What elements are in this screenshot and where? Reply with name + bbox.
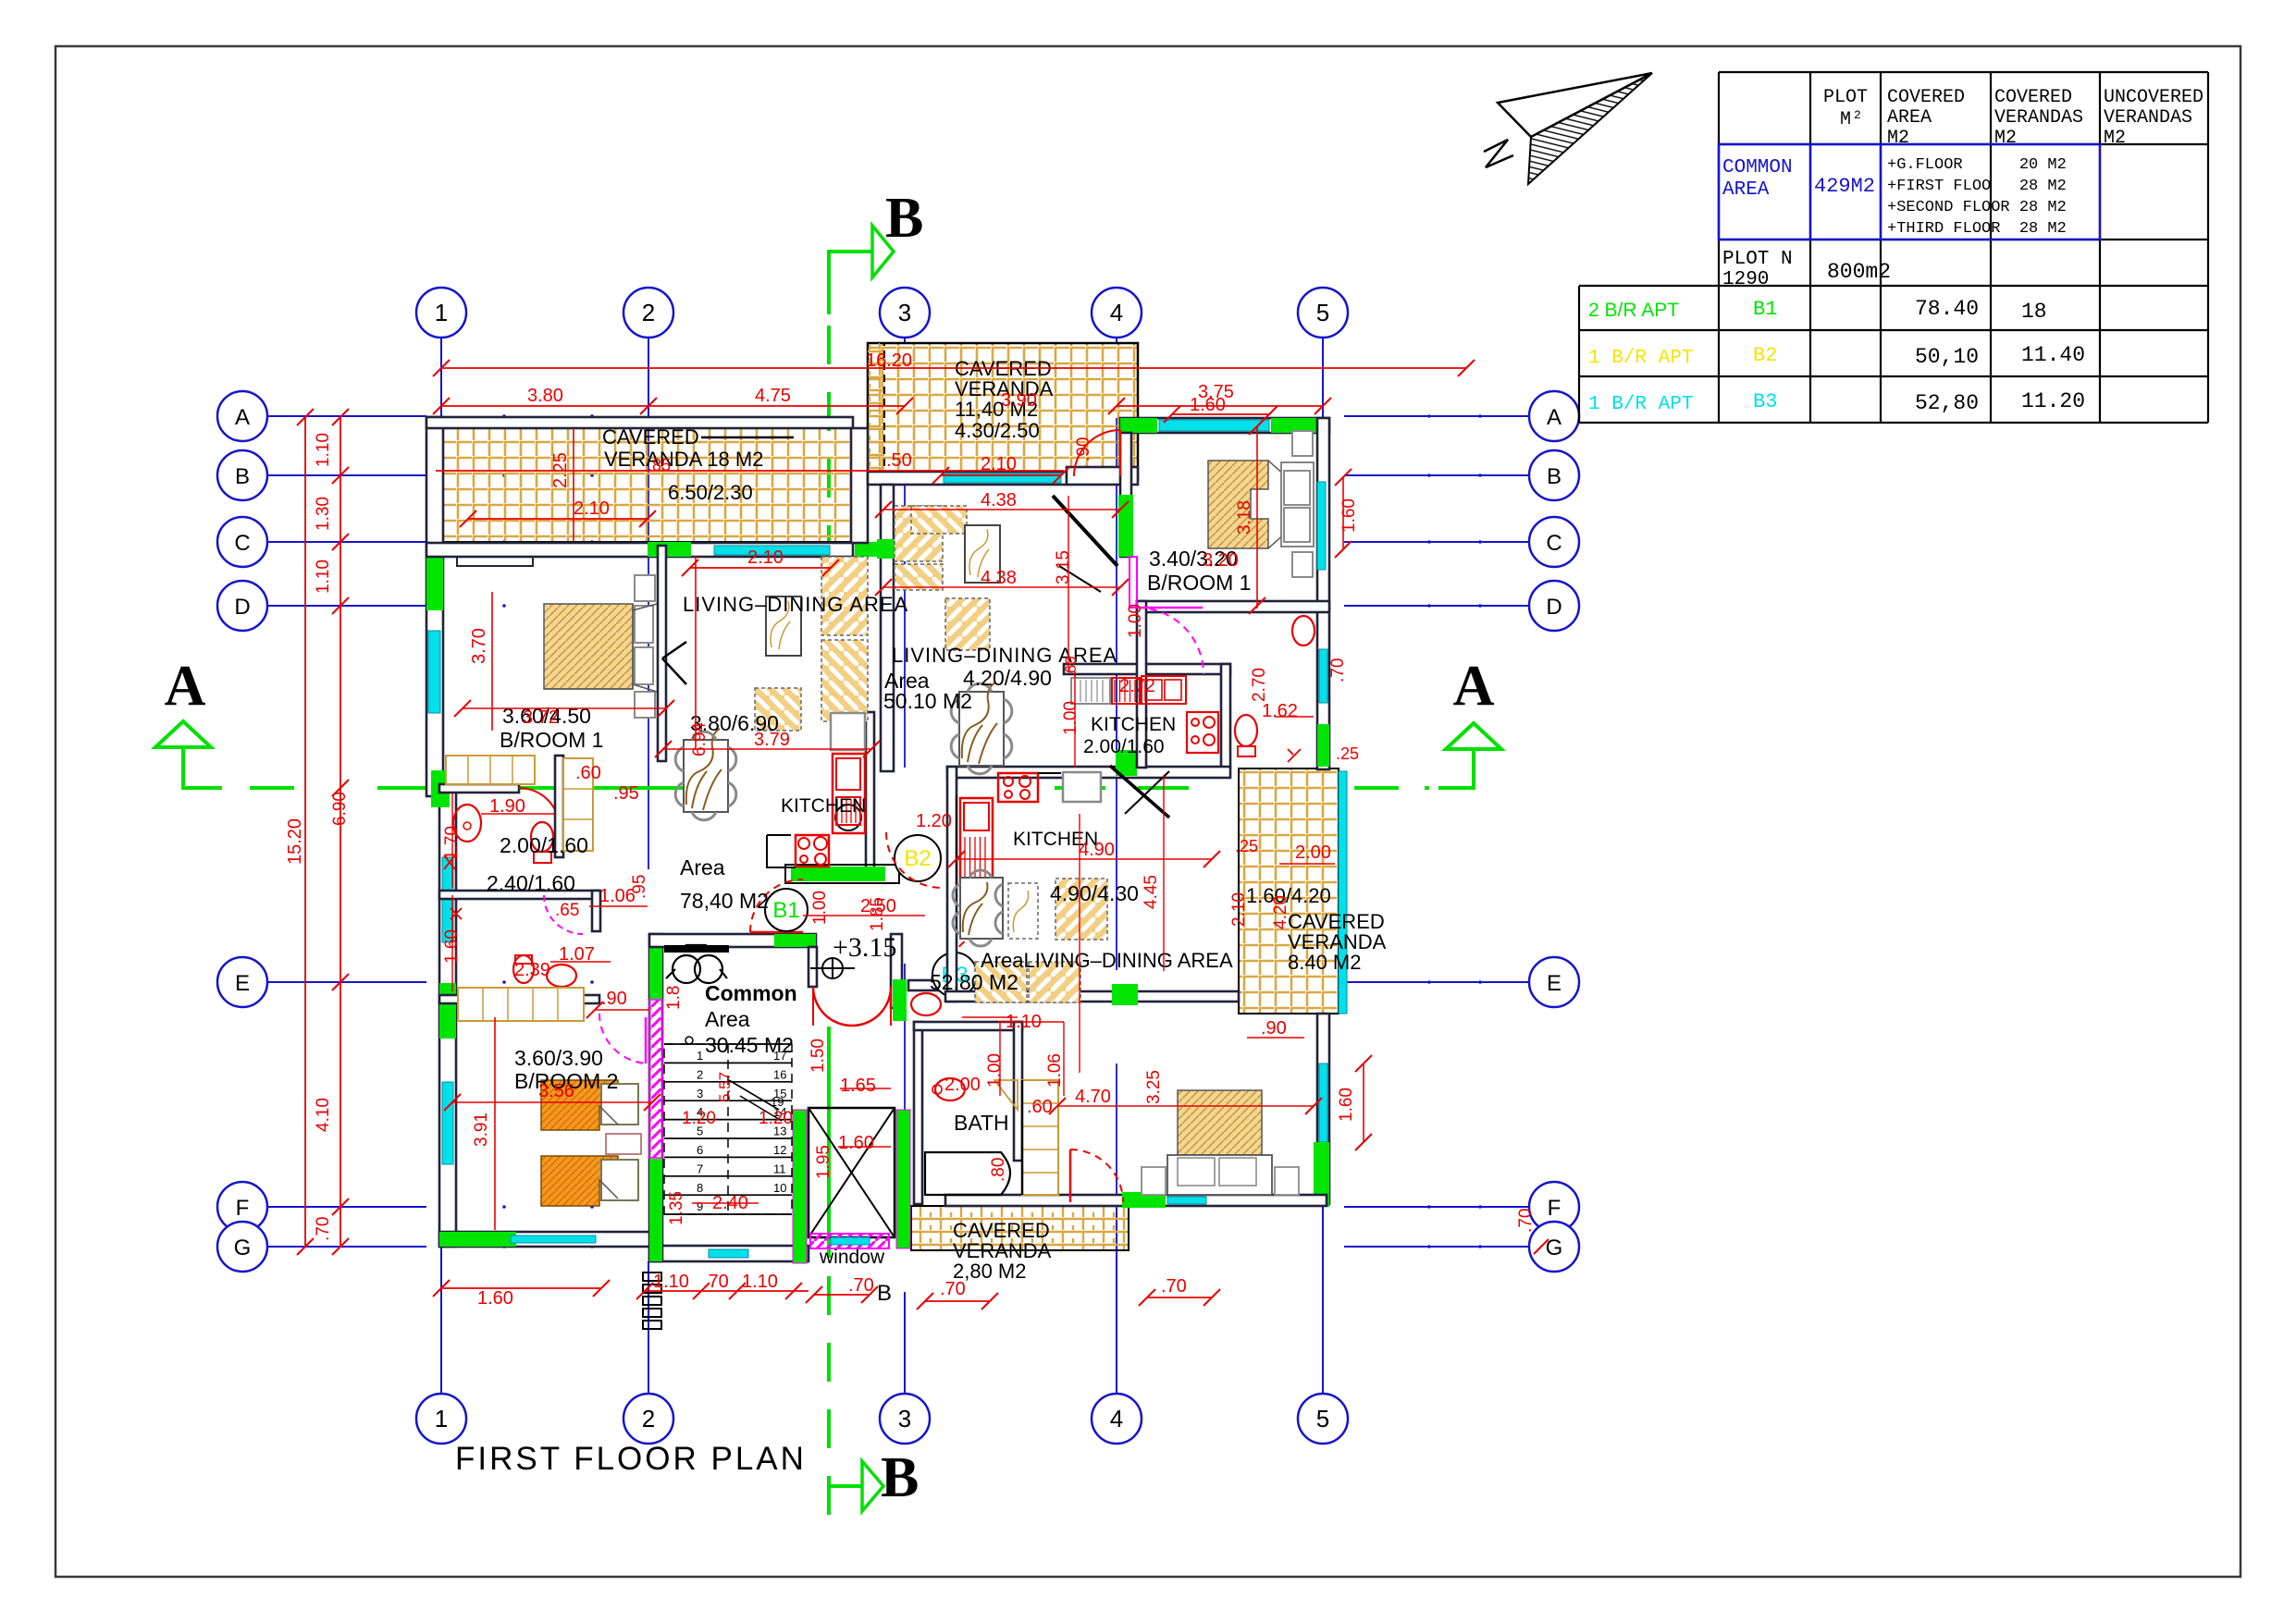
svg-text:1.8: 1.8 (664, 986, 684, 1010)
svg-text:COVERED: COVERED (1887, 87, 1965, 108)
svg-text:C: C (1546, 531, 1562, 556)
svg-text:2.10: 2.10 (574, 498, 610, 519)
svg-text:1.60: 1.60 (477, 1288, 513, 1309)
svg-text:3.15: 3.15 (1054, 550, 1073, 584)
svg-text:.70: .70 (848, 1275, 874, 1296)
svg-text:2: 2 (1854, 108, 1861, 122)
svg-text:F: F (236, 1196, 250, 1221)
svg-text:AREA: AREA (1887, 107, 1932, 129)
svg-text:KITCHEN: KITCHEN (781, 795, 866, 817)
svg-text:.70: .70 (1516, 1209, 1536, 1233)
svg-text:.65: .65 (555, 901, 579, 920)
svg-text:3.70: 3.70 (469, 628, 489, 664)
svg-text:2.39: 2.39 (514, 960, 550, 980)
svg-text:E: E (235, 971, 250, 996)
svg-text:+3.15: +3.15 (833, 932, 896, 963)
svg-text:VERANDA 18 M2: VERANDA 18 M2 (604, 448, 763, 471)
svg-text:PLOT N: PLOT N (1722, 249, 1793, 270)
svg-text:PLOT: PLOT (1823, 87, 1868, 108)
svg-text:8: 8 (697, 1181, 703, 1195)
svg-text:.90: .90 (1261, 1018, 1287, 1039)
svg-text:30.45 M2: 30.45 M2 (705, 1033, 794, 1057)
svg-text:3.60/3.90: 3.60/3.90 (514, 1046, 603, 1070)
svg-text:6.94: 6.94 (690, 722, 710, 756)
svg-text:.70: .70 (314, 1217, 333, 1241)
svg-text:Area: Area (705, 1007, 750, 1031)
svg-text:1.60: 1.60 (442, 929, 462, 964)
svg-text:.70: .70 (703, 1272, 729, 1292)
svg-text:3.90: 3.90 (1001, 390, 1037, 411)
svg-text:3: 3 (898, 1405, 911, 1432)
svg-text:VERANDAS: VERANDAS (2104, 107, 2192, 129)
svg-text:.60: .60 (1062, 656, 1080, 678)
svg-text:M2: M2 (2104, 128, 2126, 149)
svg-text:Common: Common (705, 981, 797, 1005)
svg-text:3: 3 (898, 299, 911, 326)
svg-text:12: 12 (773, 1143, 786, 1157)
svg-text:2.40: 2.40 (712, 1193, 748, 1213)
svg-text:+FIRST FLOO 28 M2: +FIRST FLOO 28 M2 (1887, 178, 2067, 195)
svg-text:1.07: 1.07 (559, 944, 595, 965)
svg-text:4.75: 4.75 (755, 386, 791, 406)
svg-text:50,10: 50,10 (1915, 345, 1979, 369)
svg-text:.70: .70 (1161, 1276, 1187, 1297)
svg-text:1.60: 1.60 (1337, 1088, 1356, 1122)
svg-text:7: 7 (697, 1162, 703, 1175)
svg-text:B2: B2 (904, 846, 931, 871)
svg-text:1.62: 1.62 (1262, 701, 1298, 721)
svg-text:.60: .60 (1027, 1097, 1053, 1117)
svg-text:52,80: 52,80 (1915, 391, 1979, 415)
svg-text:COMMON: COMMON (1722, 157, 1793, 178)
svg-text:4.38: 4.38 (981, 490, 1017, 510)
svg-text:2.10: 2.10 (747, 547, 784, 568)
svg-text:A: A (165, 655, 206, 718)
svg-text:1.20: 1.20 (682, 1109, 716, 1128)
svg-text:UNCOVERED: UNCOVERED (2104, 87, 2203, 108)
svg-text:18: 18 (2021, 300, 2047, 324)
svg-text:1.06: 1.06 (1045, 1053, 1065, 1088)
svg-text:D: D (1546, 595, 1562, 620)
svg-text:+SECOND FLOOR 28 M2: +SECOND FLOOR 28 M2 (1887, 199, 2067, 216)
svg-text:B: B (881, 1446, 919, 1509)
svg-text:5: 5 (1316, 1405, 1329, 1432)
svg-text:B2: B2 (1753, 344, 1777, 367)
svg-text:LIVING–DINING AREA: LIVING–DINING AREA (892, 644, 1117, 667)
svg-text:B/ROOM 1: B/ROOM 1 (500, 728, 603, 752)
svg-text:16.20: 16.20 (866, 350, 912, 371)
svg-text:E: E (1547, 971, 1562, 996)
svg-text:B3: B3 (1753, 390, 1777, 413)
svg-text:3.79: 3.79 (754, 730, 790, 750)
svg-text:.70: .70 (940, 1279, 966, 1299)
svg-text:1.00: 1.00 (1126, 604, 1145, 638)
svg-text:1.35: 1.35 (667, 1191, 686, 1225)
svg-text:1: 1 (435, 299, 448, 326)
svg-text:1.70: 1.70 (442, 826, 462, 860)
svg-text:9: 9 (697, 1199, 703, 1213)
svg-text:15.20: 15.20 (285, 818, 305, 865)
svg-text:3: 3 (697, 1087, 703, 1100)
svg-text:1.60: 1.60 (1190, 395, 1226, 415)
svg-text:B: B (1547, 464, 1562, 489)
svg-text:2.25: 2.25 (550, 452, 571, 488)
svg-text:B1: B1 (772, 898, 799, 923)
svg-text:16: 16 (773, 1067, 786, 1081)
svg-text:1.10: 1.10 (653, 1272, 689, 1292)
svg-text:3.25: 3.25 (1144, 1070, 1164, 1104)
svg-text:4.20/4.90: 4.20/4.90 (963, 666, 1052, 690)
svg-text:11.20: 11.20 (2021, 389, 2085, 413)
svg-text:C: C (234, 531, 250, 556)
svg-text:4.38: 4.38 (981, 568, 1017, 588)
svg-text:11.40: 11.40 (2021, 343, 2085, 367)
svg-text:2.10: 2.10 (981, 454, 1017, 474)
svg-text:1.60: 1.60 (838, 1133, 874, 1153)
svg-text:1.00: 1.00 (985, 1053, 1005, 1088)
svg-text:.60: .60 (575, 763, 601, 783)
svg-text:.85: .85 (648, 456, 671, 474)
svg-text:78.40: 78.40 (1915, 297, 1979, 321)
svg-text:.95: .95 (630, 875, 649, 899)
svg-text:1: 1 (697, 1049, 703, 1063)
svg-text:2.70: 2.70 (1250, 668, 1269, 702)
svg-text:1.60: 1.60 (1339, 498, 1359, 533)
svg-text:+THIRD FLOOR 28 M2: +THIRD FLOOR 28 M2 (1887, 220, 2067, 238)
svg-text:2.00: 2.00 (1295, 842, 1331, 863)
svg-text:1 B/R APT: 1 B/R APT (1588, 394, 1693, 415)
svg-text:1.65: 1.65 (840, 1076, 876, 1096)
svg-text:1.90: 1.90 (489, 796, 525, 817)
svg-text:G: G (234, 1236, 252, 1260)
svg-text:1.00: 1.00 (810, 891, 830, 925)
svg-text:3.72: 3.72 (523, 707, 559, 728)
svg-text:B: B (235, 464, 250, 489)
svg-text:3.56: 3.56 (538, 1081, 574, 1101)
svg-text:1 B/R APT: 1 B/R APT (1588, 348, 1693, 369)
svg-text:1.10: 1.10 (742, 1272, 778, 1292)
svg-text:.50: .50 (886, 450, 912, 471)
svg-text:800m2: 800m2 (1827, 260, 1891, 284)
svg-text:1: 1 (435, 1405, 448, 1432)
svg-text:6.90: 6.90 (330, 792, 350, 826)
svg-text:2: 2 (642, 1405, 655, 1432)
svg-text:4.10: 4.10 (314, 1098, 333, 1132)
svg-text:5: 5 (1316, 299, 1329, 326)
svg-text:4.45: 4.45 (1142, 875, 1161, 909)
svg-text:LIVING–DINING AREA: LIVING–DINING AREA (683, 593, 908, 616)
svg-text:D: D (234, 595, 250, 620)
svg-text:BATH: BATH (954, 1111, 1009, 1135)
svg-text:78,40 M2: 78,40 M2 (680, 889, 769, 913)
svg-text:4: 4 (1110, 1405, 1123, 1432)
svg-text:window: window (819, 1247, 885, 1268)
svg-text:3.91: 3.91 (472, 1113, 491, 1147)
svg-text:3.18: 3.18 (1235, 500, 1254, 535)
svg-text:.70: .70 (1328, 658, 1348, 682)
svg-text:6: 6 (697, 1143, 703, 1157)
svg-text:B1: B1 (1753, 298, 1777, 321)
svg-text:B/ROOM 1: B/ROOM 1 (1147, 571, 1251, 595)
svg-text:2: 2 (697, 1067, 703, 1081)
svg-text:2.00/1.60: 2.00/1.60 (1083, 736, 1165, 757)
svg-text:Area: Area (680, 855, 725, 879)
svg-text:.95: .95 (613, 783, 639, 804)
svg-text:4.70: 4.70 (1075, 1087, 1111, 1107)
svg-text:A: A (235, 405, 250, 430)
svg-text:3.80: 3.80 (527, 386, 563, 406)
svg-text:2.00/1.60: 2.00/1.60 (500, 833, 588, 857)
svg-text:2 B/R APT: 2 B/R APT (1588, 300, 1679, 321)
svg-text:4.90/4.30: 4.90/4.30 (1050, 881, 1139, 905)
svg-text:2.72: 2.72 (1119, 676, 1155, 696)
svg-text:.80: .80 (989, 1158, 1008, 1182)
svg-text:.25: .25 (1235, 837, 1258, 855)
svg-text:B: B (885, 187, 923, 250)
svg-text:1.30: 1.30 (314, 497, 333, 531)
svg-text:3.20: 3.20 (1203, 550, 1239, 571)
svg-text:6.50/2.30: 6.50/2.30 (668, 481, 753, 504)
svg-text:10: 10 (773, 1181, 786, 1195)
svg-text:1.95: 1.95 (814, 1145, 833, 1179)
svg-text:M: M (1840, 109, 1851, 130)
svg-text:M2: M2 (1994, 128, 2017, 149)
svg-text:52.80 M2: 52.80 M2 (930, 970, 1018, 994)
svg-text:429M2: 429M2 (1814, 175, 1875, 198)
svg-text:1.20: 1.20 (759, 1109, 793, 1128)
svg-text:FIRST FLOOR PLAN: FIRST FLOOR PLAN (455, 1441, 807, 1477)
svg-text:1290: 1290 (1722, 269, 1769, 290)
svg-text:.25: .25 (1336, 744, 1359, 763)
svg-text:1.10: 1.10 (314, 559, 333, 594)
svg-text:4: 4 (1110, 299, 1123, 326)
svg-text:8.40 M2: 8.40 M2 (1288, 951, 1362, 974)
svg-text:1.50: 1.50 (809, 1039, 828, 1073)
svg-text:M2: M2 (1887, 128, 1909, 149)
svg-text:COVERED: COVERED (1994, 87, 2072, 108)
svg-text:4.90: 4.90 (1079, 840, 1115, 860)
svg-text:1.20: 1.20 (916, 811, 952, 831)
svg-text:4.20: 4.20 (1271, 895, 1290, 929)
svg-text:VERANDAS: VERANDAS (1994, 107, 2083, 129)
svg-text:50.10 M2: 50.10 M2 (883, 689, 972, 713)
svg-text:2.40/1.60: 2.40/1.60 (487, 871, 575, 895)
svg-text:.90: .90 (601, 989, 627, 1009)
svg-text:1.00: 1.00 (1061, 701, 1080, 735)
svg-text:1.10: 1.10 (314, 433, 333, 467)
svg-text:2.10: 2.10 (1229, 892, 1249, 927)
svg-text:4.30/2.50: 4.30/2.50 (955, 419, 1040, 442)
svg-text:+G.FLOOR 20 M2: +G.FLOOR 20 M2 (1887, 156, 2067, 174)
svg-text:A: A (1547, 405, 1562, 430)
svg-text:11: 11 (773, 1162, 786, 1175)
svg-text:1.85: 1.85 (868, 897, 887, 931)
svg-text:KITCHEN: KITCHEN (1091, 714, 1176, 735)
svg-text:2: 2 (642, 299, 655, 326)
svg-text:A: A (1453, 655, 1495, 718)
svg-text:F: F (1548, 1196, 1562, 1221)
svg-text:5.57: 5.57 (716, 1072, 734, 1102)
svg-text:AREA: AREA (1722, 179, 1770, 201)
svg-text:2.00: 2.00 (944, 1075, 981, 1095)
svg-text:B: B (877, 1281, 892, 1306)
svg-text:AreaLIVING–DINING AREA: AreaLIVING–DINING AREA (981, 949, 1233, 972)
